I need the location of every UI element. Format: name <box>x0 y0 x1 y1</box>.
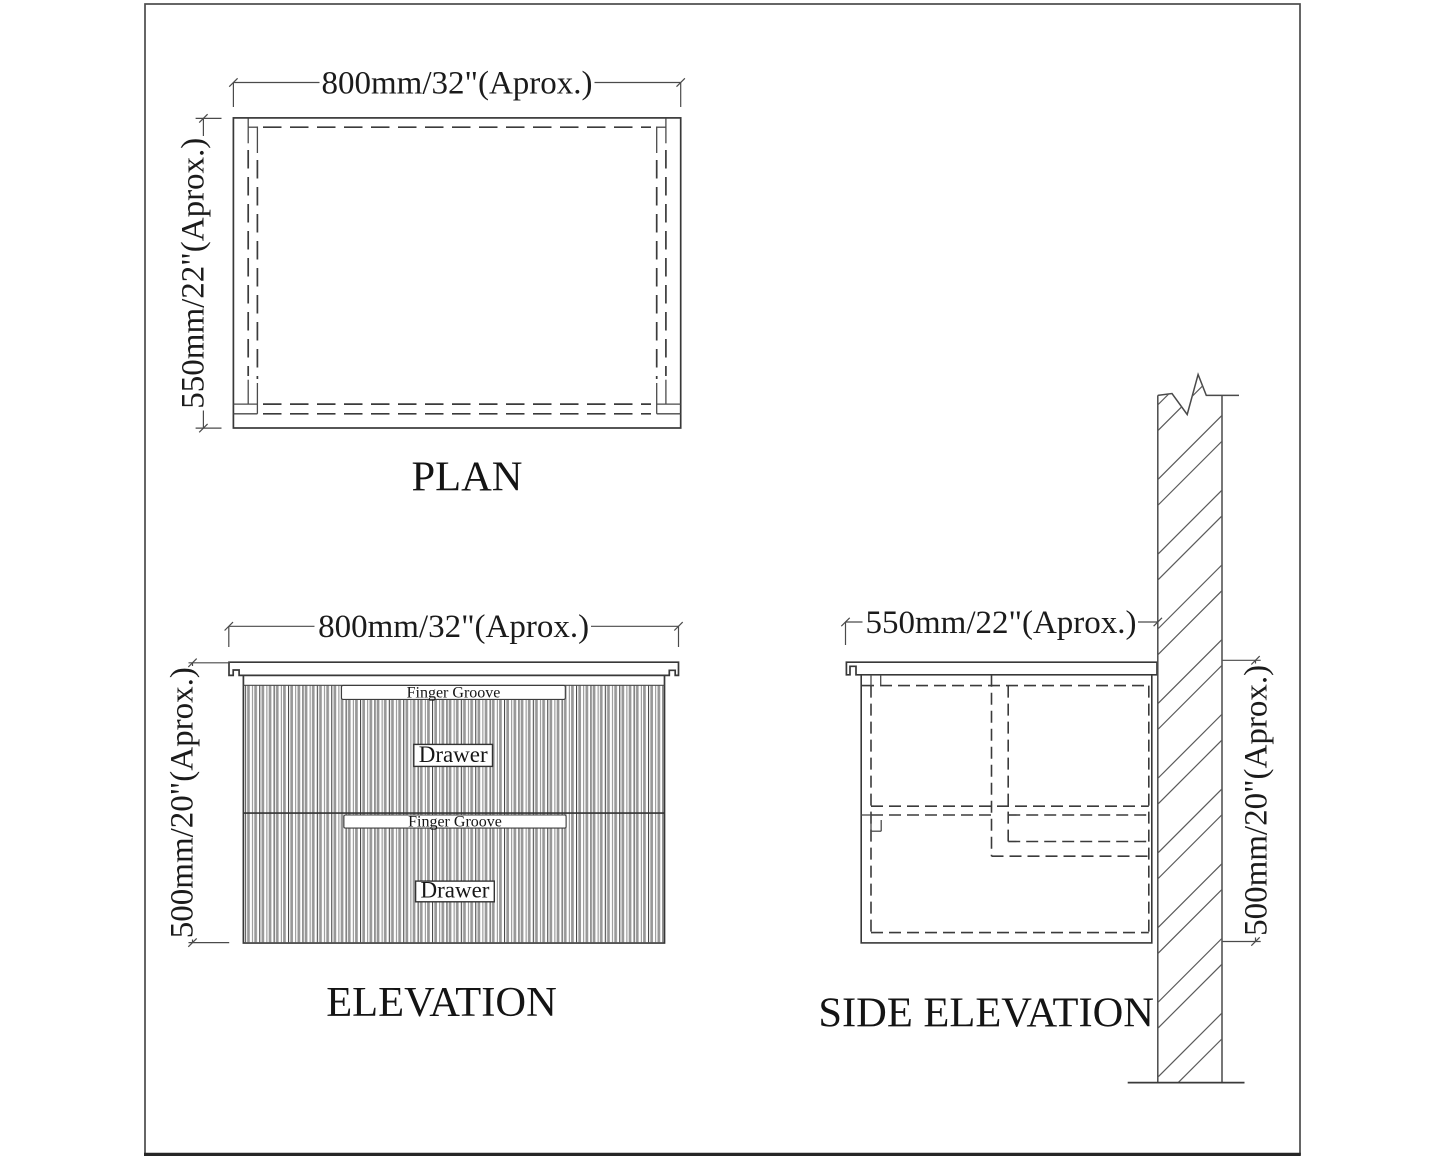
svg-text:800mm/32"(Aprox.): 800mm/32"(Aprox.) <box>318 609 589 645</box>
svg-text:550mm/22"(Aprox.): 550mm/22"(Aprox.) <box>865 605 1136 641</box>
svg-text:Drawer: Drawer <box>419 742 488 767</box>
svg-text:550mm/22"(Aprox.): 550mm/22"(Aprox.) <box>175 138 211 409</box>
svg-text:PLAN: PLAN <box>412 454 523 501</box>
svg-text:500mm/20"(Aprox.): 500mm/20"(Aprox.) <box>165 667 201 938</box>
svg-text:SIDE ELEVATION: SIDE ELEVATION <box>818 990 1154 1037</box>
svg-text:Finger Groove: Finger Groove <box>407 684 501 701</box>
svg-text:Finger Groove: Finger Groove <box>408 813 502 830</box>
svg-text:800mm/32"(Aprox.): 800mm/32"(Aprox.) <box>321 65 592 101</box>
svg-text:Drawer: Drawer <box>421 878 490 903</box>
svg-text:ELEVATION: ELEVATION <box>326 979 557 1026</box>
svg-text:500mm/20"(Aprox.): 500mm/20"(Aprox.) <box>1239 665 1275 936</box>
